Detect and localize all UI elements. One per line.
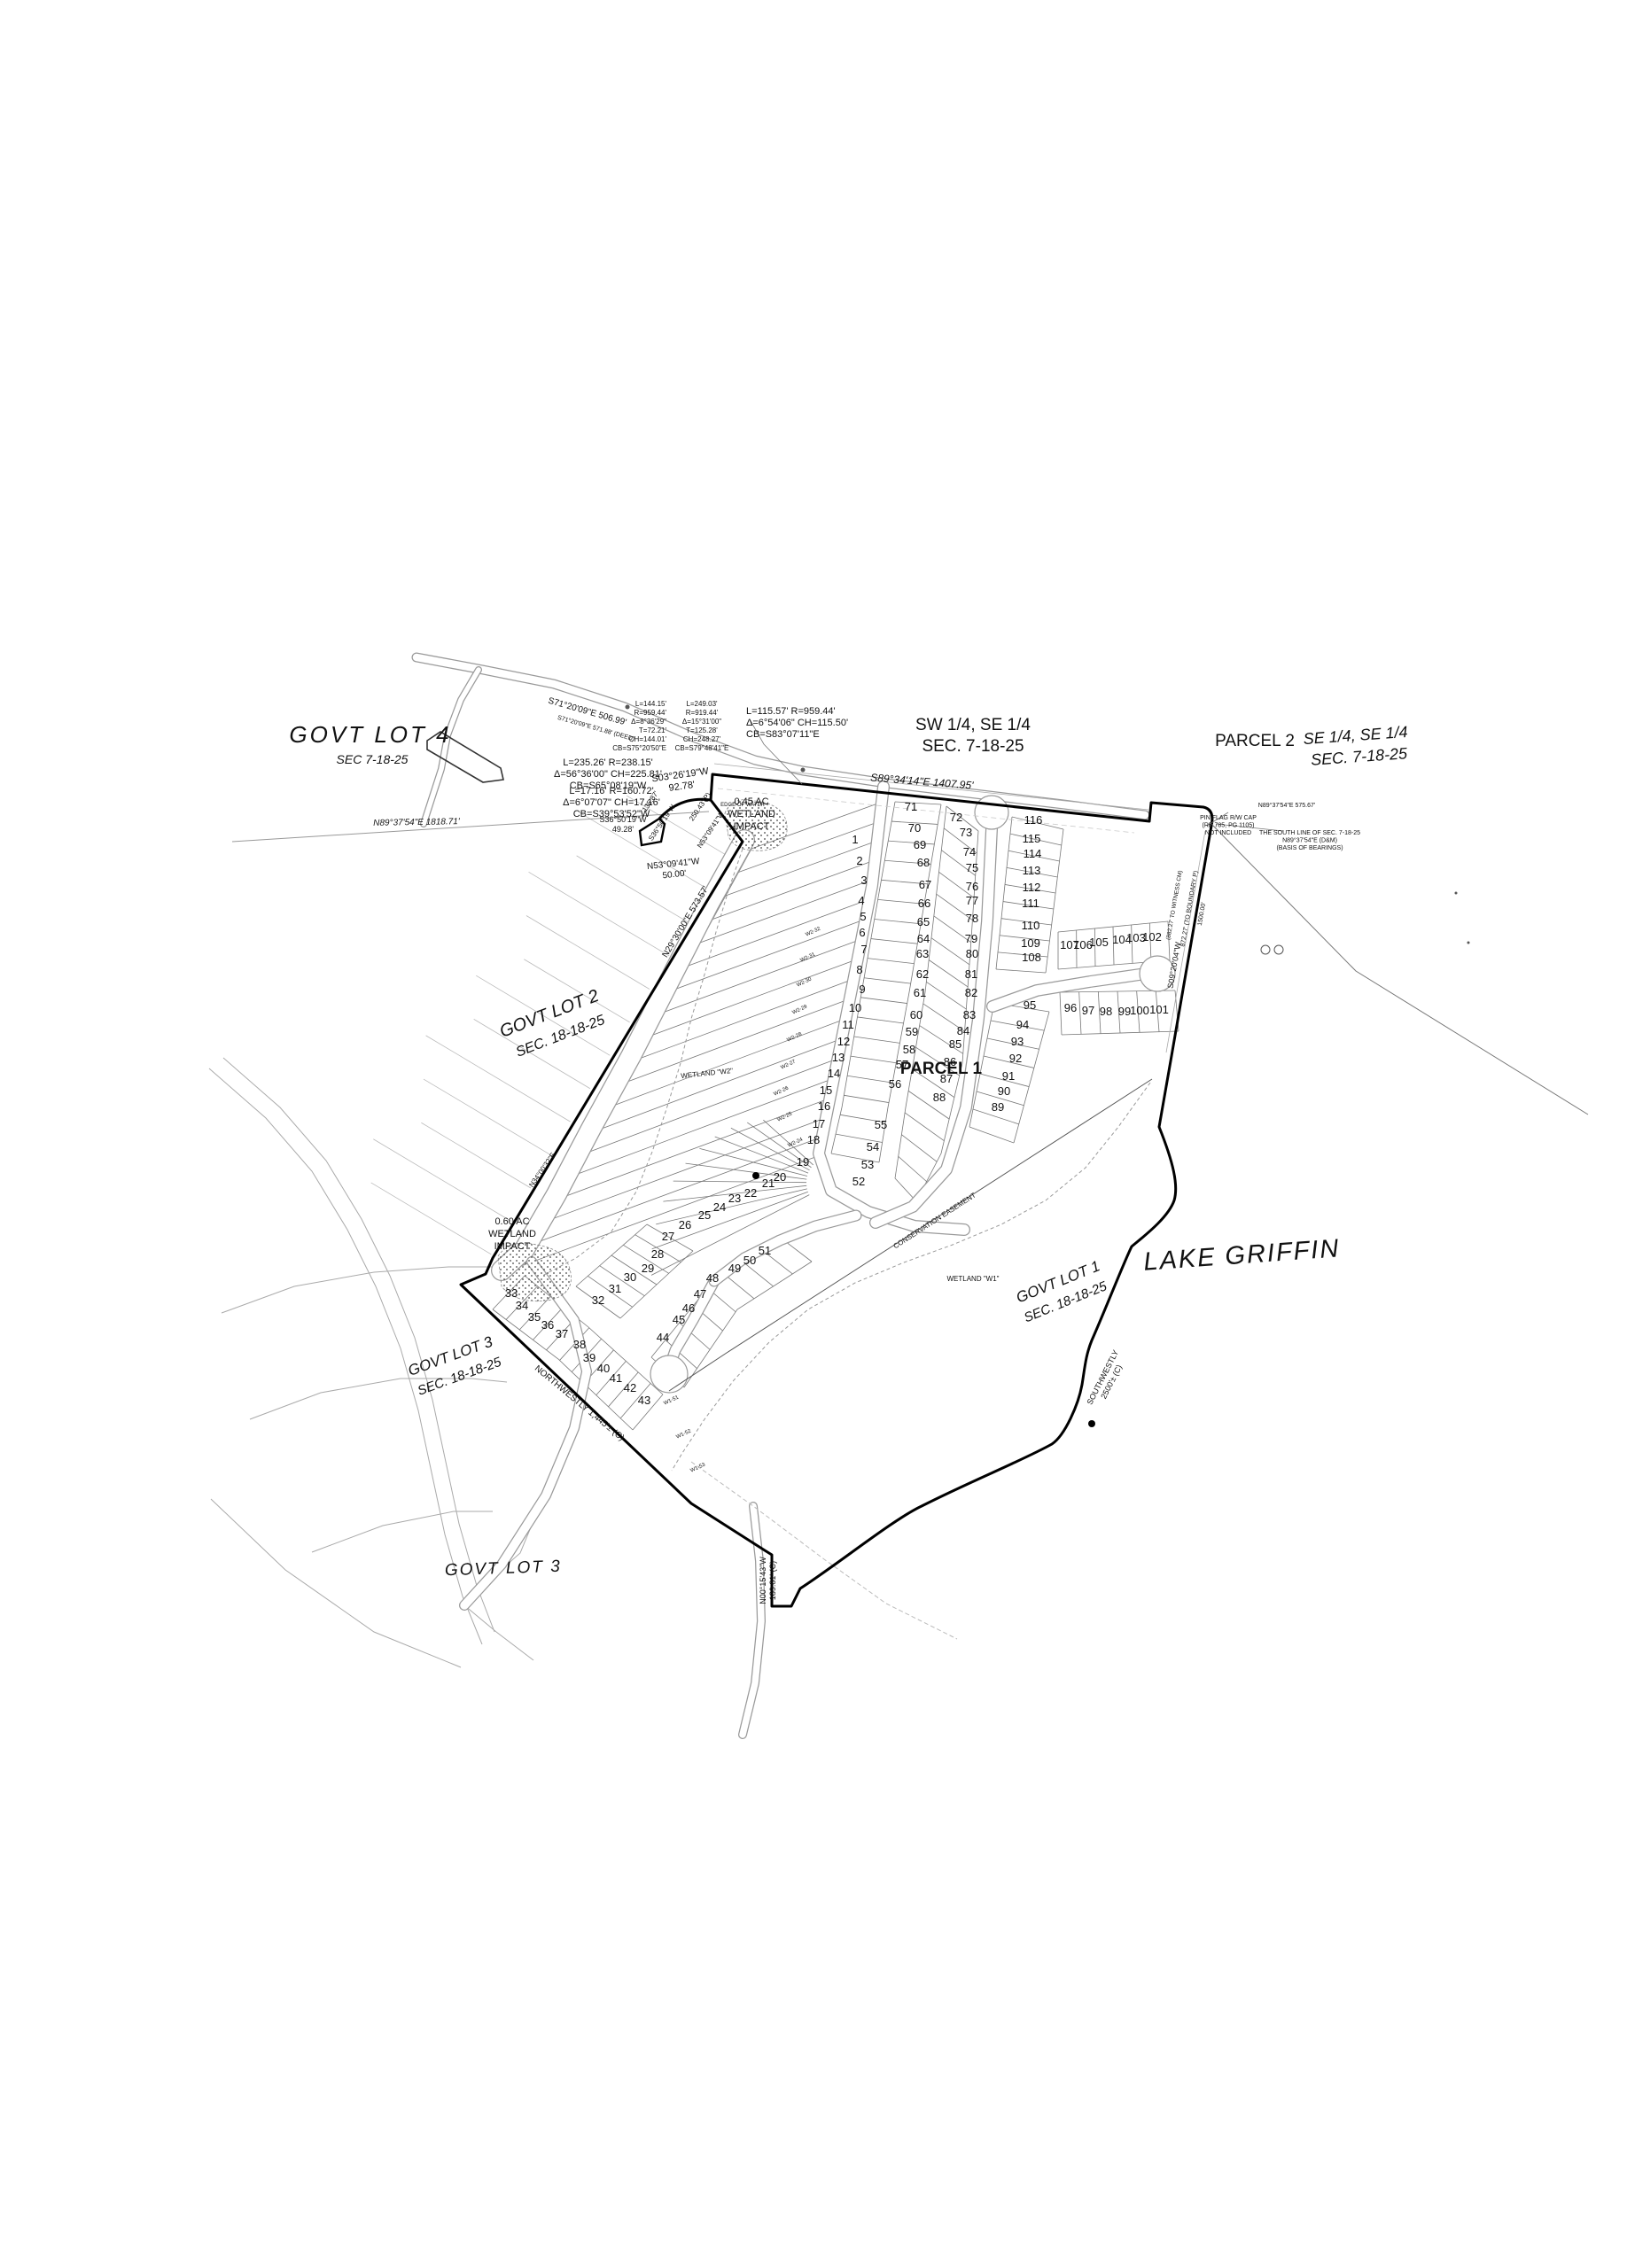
lot-number: 56	[889, 1077, 901, 1091]
svg-text:100: 100	[1130, 1004, 1149, 1017]
svg-text:WETLAND: WETLAND	[488, 1229, 536, 1239]
svg-text:70: 70	[908, 821, 921, 835]
lot-number: 90	[998, 1084, 1010, 1098]
lot-number: 79	[965, 932, 977, 945]
lot-number: 42	[624, 1381, 636, 1394]
svg-text:THE SOUTH LINE OF SEC. 7-18-25: THE SOUTH LINE OF SEC. 7-18-25	[1259, 830, 1360, 836]
wetland-label: WETLAND	[728, 809, 775, 819]
svg-text:SEC 7-18-25: SEC 7-18-25	[337, 752, 409, 766]
svg-text:55: 55	[875, 1118, 887, 1131]
lot-number: 50	[743, 1254, 756, 1267]
svg-text:80: 80	[966, 947, 978, 960]
svg-text:WETLAND "W1": WETLAND "W1"	[946, 1275, 999, 1283]
svg-text:L=249.03': L=249.03'	[686, 700, 718, 708]
svg-text:SEC. 7-18-25: SEC. 7-18-25	[922, 737, 1024, 756]
svg-text:40: 40	[597, 1362, 610, 1375]
lot-number: 52	[852, 1175, 865, 1188]
svg-text:6: 6	[859, 926, 865, 939]
bearing-label: N89°37'54"E 575.67'	[1258, 802, 1315, 809]
area-label: PARCEL 2	[1215, 732, 1295, 750]
svg-text:4: 4	[858, 894, 864, 907]
lot-number: 35	[528, 1310, 541, 1324]
svg-text:CH=144.01': CH=144.01'	[629, 735, 667, 743]
lot-number: 1	[852, 833, 858, 846]
svg-text:24: 24	[713, 1200, 726, 1214]
plat-map: 1234567891011121314151617181920212223242…	[0, 0, 1627, 2268]
svg-text:PARCEL 2: PARCEL 2	[1215, 732, 1295, 750]
svg-text:101: 101	[1149, 1003, 1169, 1016]
svg-text:93: 93	[1011, 1035, 1024, 1048]
svg-text:13: 13	[832, 1051, 845, 1064]
lot-number: 9	[859, 983, 865, 996]
svg-text:94: 94	[1016, 1018, 1029, 1031]
lot-number: 21	[762, 1177, 775, 1190]
area-label: GOVT LOT 4	[289, 721, 451, 748]
lot-number: 60	[910, 1008, 922, 1021]
svg-text:96: 96	[1064, 1001, 1077, 1014]
svg-text:28: 28	[651, 1247, 664, 1261]
svg-text:38: 38	[573, 1338, 586, 1351]
lot-number: 22	[744, 1186, 757, 1200]
lot-number: 99	[1118, 1005, 1131, 1018]
svg-text:88: 88	[933, 1091, 946, 1104]
svg-text:(BASIS OF BEARINGS): (BASIS OF BEARINGS)	[1276, 845, 1343, 851]
lot-number: 36	[541, 1318, 554, 1332]
survey-point	[1088, 1420, 1095, 1427]
lot-number: 48	[706, 1271, 719, 1285]
lot-number: 55	[875, 1118, 887, 1131]
lot-number: 101	[1149, 1003, 1169, 1016]
lot-number: 40	[597, 1362, 610, 1375]
svg-text:189.81' (C): 189.81' (C)	[768, 1561, 777, 1600]
lot-number: 45	[673, 1313, 685, 1326]
svg-text:95: 95	[1024, 998, 1036, 1012]
svg-text:111: 111	[1022, 897, 1039, 910]
lot-number: 8	[856, 963, 862, 976]
svg-text:60: 60	[910, 1008, 922, 1021]
lot-number: 72	[950, 811, 962, 824]
svg-text:L=115.57' R=959.44': L=115.57' R=959.44'	[746, 706, 836, 717]
svg-text:T=125.28': T=125.28'	[686, 726, 718, 734]
svg-text:23: 23	[728, 1192, 741, 1205]
lot-number: 74	[963, 845, 976, 858]
svg-text:64: 64	[917, 932, 930, 945]
lot-number: 91	[1002, 1069, 1015, 1083]
svg-text:68: 68	[917, 856, 930, 869]
area-label: SW 1/4, SE 1/4	[915, 716, 1031, 734]
lot-number: 63	[916, 947, 929, 960]
svg-text:3: 3	[860, 874, 867, 887]
lot-number: 114	[1024, 847, 1042, 860]
svg-text:Δ=8°36'29": Δ=8°36'29"	[631, 718, 666, 726]
lot-number: 32	[592, 1293, 604, 1307]
svg-text:(RB 785, PG 1105): (RB 785, PG 1105)	[1202, 823, 1254, 829]
svg-text:73: 73	[960, 826, 972, 839]
area-label: SEC 7-18-25	[337, 752, 409, 766]
svg-text:21: 21	[762, 1177, 775, 1190]
svg-text:19: 19	[797, 1155, 809, 1169]
lot-number: 16	[818, 1099, 830, 1113]
area-label: PARCEL 1	[900, 1060, 983, 1078]
svg-text:SW 1/4, SE 1/4: SW 1/4, SE 1/4	[915, 716, 1031, 734]
svg-text:9: 9	[859, 983, 865, 996]
lot-number: 71	[905, 800, 917, 813]
lot-number: 81	[965, 967, 977, 981]
svg-text:S36°50'19"W: S36°50'19"W	[599, 815, 647, 824]
svg-text:56: 56	[889, 1077, 901, 1091]
svg-text:IMPACT: IMPACT	[494, 1241, 531, 1252]
lot-number: 111	[1022, 897, 1039, 910]
svg-text:54: 54	[867, 1140, 879, 1153]
svg-text:107: 107	[1060, 938, 1079, 951]
svg-text:53: 53	[861, 1158, 874, 1171]
svg-text:CB=S79°48'41"E: CB=S79°48'41"E	[675, 744, 729, 752]
svg-text:N89°37'54"E 1818.71': N89°37'54"E 1818.71'	[373, 817, 461, 828]
lot-number: 13	[832, 1051, 845, 1064]
lot-number: 95	[1024, 998, 1036, 1012]
svg-text:26: 26	[679, 1218, 691, 1231]
svg-text:L=17.16' R=160.72': L=17.16' R=160.72'	[569, 786, 653, 796]
bearing-label: N89°37'54"E 1818.71'	[373, 817, 461, 828]
lot-number: 92	[1009, 1052, 1022, 1065]
lot-number: 59	[906, 1025, 918, 1038]
lot-number: 68	[917, 856, 930, 869]
svg-text:112: 112	[1023, 881, 1041, 894]
svg-text:49: 49	[728, 1262, 741, 1275]
lot-number: 112	[1023, 881, 1041, 894]
wetland-label: IMPACT	[734, 821, 770, 832]
svg-text:Δ=6°54'06" CH=115.50': Δ=6°54'06" CH=115.50'	[746, 718, 848, 728]
lot-number: 69	[914, 838, 926, 851]
svg-text:EDGE OF WATER: EDGE OF WATER	[720, 803, 765, 808]
svg-text:81: 81	[965, 967, 977, 981]
svg-text:PARCEL 1: PARCEL 1	[900, 1060, 983, 1078]
svg-text:77: 77	[966, 894, 978, 907]
svg-text:18: 18	[807, 1133, 820, 1146]
svg-text:14: 14	[828, 1067, 840, 1080]
lot-number: 10	[849, 1001, 861, 1014]
lot-number: 26	[679, 1218, 691, 1231]
lot-number: 54	[867, 1140, 879, 1153]
lot-number: 83	[963, 1008, 976, 1021]
lot-number: 116	[1024, 813, 1043, 827]
svg-text:114: 114	[1024, 847, 1042, 860]
lot-number: 27	[662, 1230, 674, 1243]
lot-number: 113	[1023, 864, 1041, 877]
bearing-label: EDGE OF WATER	[720, 803, 765, 808]
survey-point	[752, 1172, 759, 1179]
svg-text:33: 33	[505, 1286, 518, 1300]
lot-number: 80	[966, 947, 978, 960]
svg-text:34: 34	[516, 1299, 528, 1312]
svg-text:58: 58	[903, 1043, 915, 1056]
svg-text:50: 50	[743, 1254, 756, 1267]
svg-text:65: 65	[917, 915, 930, 928]
svg-text:R=959.44': R=959.44'	[634, 709, 667, 717]
svg-text:15: 15	[820, 1084, 832, 1097]
svg-text:7: 7	[860, 943, 867, 956]
svg-text:PIN FLAG R/W CAP: PIN FLAG R/W CAP	[1200, 815, 1257, 821]
survey-point	[1455, 892, 1458, 895]
svg-text:IMPACT: IMPACT	[734, 821, 770, 832]
lot-number: 29	[642, 1262, 654, 1275]
svg-text:59: 59	[906, 1025, 918, 1038]
svg-text:44: 44	[657, 1331, 669, 1344]
svg-text:R=919.44': R=919.44'	[686, 709, 719, 717]
svg-text:99: 99	[1118, 1005, 1131, 1018]
lot-number: 43	[638, 1394, 650, 1407]
svg-text:17: 17	[813, 1117, 825, 1130]
svg-text:74: 74	[963, 845, 976, 858]
svg-text:1: 1	[852, 833, 858, 846]
lot-number: 18	[807, 1133, 820, 1146]
lot-number: 110	[1022, 919, 1040, 932]
lot-number: 67	[919, 878, 931, 891]
svg-text:CB=S83°07'11"E: CB=S83°07'11"E	[746, 729, 820, 740]
lot-number: 44	[657, 1331, 669, 1344]
lot-number: 77	[966, 894, 978, 907]
lot-number: 70	[908, 821, 921, 835]
lot-number: 88	[933, 1091, 946, 1104]
svg-text:20: 20	[774, 1170, 786, 1184]
svg-text:30: 30	[624, 1270, 636, 1284]
svg-text:113: 113	[1023, 864, 1041, 877]
svg-text:2: 2	[856, 854, 862, 867]
lot-number: 25	[698, 1208, 711, 1222]
lot-number: 108	[1022, 951, 1041, 964]
lot-number: 66	[918, 897, 930, 910]
lot-number: 89	[992, 1100, 1004, 1114]
svg-text:85: 85	[949, 1037, 961, 1051]
svg-text:109: 109	[1021, 936, 1040, 950]
svg-text:69: 69	[914, 838, 926, 851]
lot-number: 2	[856, 854, 862, 867]
wetland-label: WETLAND "W1"	[946, 1275, 999, 1283]
svg-text:36: 36	[541, 1318, 554, 1332]
lot-number: 6	[859, 926, 865, 939]
svg-text:71: 71	[905, 800, 917, 813]
svg-text:0.60 AC: 0.60 AC	[494, 1216, 529, 1227]
lot-number: 24	[713, 1200, 726, 1214]
svg-text:92: 92	[1009, 1052, 1022, 1065]
svg-text:11: 11	[842, 1018, 854, 1031]
lot-number: 47	[694, 1287, 706, 1301]
svg-text:37: 37	[556, 1327, 568, 1340]
lot-number: 84	[957, 1024, 969, 1037]
lot-number: 61	[914, 986, 926, 999]
svg-text:90: 90	[998, 1084, 1010, 1098]
svg-text:62: 62	[916, 967, 929, 981]
svg-text:108: 108	[1022, 951, 1041, 964]
lot-number: 94	[1016, 1018, 1029, 1031]
svg-text:22: 22	[744, 1186, 757, 1200]
lot-number: 64	[917, 932, 930, 945]
lot-number: 46	[682, 1301, 695, 1315]
svg-text:GOVT LOT 4: GOVT LOT 4	[289, 721, 451, 748]
lot-number: 37	[556, 1327, 568, 1340]
svg-text:N89°37'54"E 575.67': N89°37'54"E 575.67'	[1258, 802, 1315, 809]
lot-number: 85	[949, 1037, 961, 1051]
lot-number: 41	[610, 1371, 622, 1385]
lot-number: 23	[728, 1192, 741, 1205]
lot-number: 107	[1060, 938, 1079, 951]
svg-text:8: 8	[856, 963, 862, 976]
svg-text:WETLAND: WETLAND	[728, 809, 775, 819]
svg-text:115: 115	[1023, 832, 1041, 845]
svg-text:66: 66	[918, 897, 930, 910]
svg-text:42: 42	[624, 1381, 636, 1394]
svg-text:35: 35	[528, 1310, 541, 1324]
svg-text:29: 29	[642, 1262, 654, 1275]
svg-text:91: 91	[1002, 1069, 1015, 1083]
svg-text:41: 41	[610, 1371, 622, 1385]
plat-sheet: 1234567891011121314151617181920212223242…	[0, 0, 1627, 2268]
lot-number: 5	[860, 910, 866, 923]
svg-text:32: 32	[592, 1293, 604, 1307]
svg-text:L=235.26' R=238.15': L=235.26' R=238.15'	[563, 757, 652, 768]
svg-text:75: 75	[966, 861, 978, 874]
lot-number: 33	[505, 1286, 518, 1300]
lot-number: 17	[813, 1117, 825, 1130]
svg-text:83: 83	[963, 1008, 976, 1021]
lot-number: 15	[820, 1084, 832, 1097]
svg-text:Δ=56°36'00" CH=225.81': Δ=56°36'00" CH=225.81'	[554, 769, 662, 780]
lot-number: 65	[917, 915, 930, 928]
svg-text:31: 31	[609, 1282, 621, 1295]
svg-text:10: 10	[849, 1001, 861, 1014]
lot-number: 51	[759, 1244, 771, 1257]
lot-number: 19	[797, 1155, 809, 1169]
lot-number: 104	[1112, 933, 1132, 946]
svg-text:104: 104	[1112, 933, 1132, 946]
svg-text:27: 27	[662, 1230, 674, 1243]
svg-text:25: 25	[698, 1208, 711, 1222]
lot-number: 7	[860, 943, 867, 956]
svg-text:116: 116	[1024, 813, 1043, 827]
svg-text:39: 39	[583, 1351, 596, 1364]
lot-number: 75	[966, 861, 978, 874]
lot-number: 109	[1021, 936, 1040, 950]
lot-number: 28	[651, 1247, 664, 1261]
svg-text:L=144.15': L=144.15'	[635, 700, 667, 708]
survey-point	[1467, 942, 1470, 944]
svg-text:43: 43	[638, 1394, 650, 1407]
wetland-label: 0.60 AC	[494, 1216, 529, 1227]
lot-number: 100	[1130, 1004, 1149, 1017]
lot-number: 20	[774, 1170, 786, 1184]
lot-number: 31	[609, 1282, 621, 1295]
lot-number: 12	[837, 1035, 850, 1048]
svg-text:79: 79	[965, 932, 977, 945]
lot-number: 30	[624, 1270, 636, 1284]
svg-text:45: 45	[673, 1313, 685, 1326]
lot-number: 62	[916, 967, 929, 981]
cul-de-sac	[975, 796, 1008, 829]
lot-number: 38	[573, 1338, 586, 1351]
wetland-label: WETLAND	[488, 1229, 536, 1239]
lot-number: 76	[966, 880, 978, 893]
lot-number: 49	[728, 1262, 741, 1275]
svg-text:CB=S75°20'50"E: CB=S75°20'50"E	[612, 744, 666, 752]
svg-text:76: 76	[966, 880, 978, 893]
svg-text:67: 67	[919, 878, 931, 891]
svg-text:78: 78	[966, 912, 978, 925]
lot-number: 96	[1064, 1001, 1077, 1014]
lot-number: 115	[1023, 832, 1041, 845]
svg-text:12: 12	[837, 1035, 850, 1048]
svg-text:NOT INCLUDED: NOT INCLUDED	[1205, 830, 1251, 836]
svg-text:CH=248.27': CH=248.27'	[683, 735, 721, 743]
lot-number: 3	[860, 874, 867, 887]
note-block: PIN FLAG R/W CAP(RB 785, PG 1105)NOT INC…	[1200, 815, 1257, 836]
svg-text:72: 72	[950, 811, 962, 824]
svg-text:16: 16	[818, 1099, 830, 1113]
svg-text:46: 46	[682, 1301, 695, 1315]
svg-text:49.28': 49.28'	[612, 825, 634, 834]
survey-point	[801, 768, 806, 773]
lot-number: 78	[966, 912, 978, 925]
lot-number: 53	[861, 1158, 874, 1171]
svg-text:97: 97	[1082, 1004, 1094, 1017]
lot-number: 73	[960, 826, 972, 839]
wetland-label: IMPACT	[494, 1241, 531, 1252]
svg-text:63: 63	[916, 947, 929, 960]
svg-text:51: 51	[759, 1244, 771, 1257]
svg-text:98: 98	[1100, 1005, 1112, 1018]
lot-number: 34	[516, 1299, 528, 1312]
lot-number: 58	[903, 1043, 915, 1056]
survey-point	[626, 705, 630, 710]
cul-de-sac	[650, 1355, 688, 1393]
svg-text:110: 110	[1022, 919, 1040, 932]
lot-number: 4	[858, 894, 864, 907]
svg-text:N00°15'43"W: N00°15'43"W	[759, 1557, 767, 1604]
lot-number: 98	[1100, 1005, 1112, 1018]
svg-text:Δ=15°31'00": Δ=15°31'00"	[682, 718, 721, 726]
svg-text:52: 52	[852, 1175, 865, 1188]
area-label: SEC. 7-18-25	[922, 737, 1024, 756]
svg-text:89: 89	[992, 1100, 1004, 1114]
lot-number: 39	[583, 1351, 596, 1364]
svg-text:5: 5	[860, 910, 866, 923]
lot-number: 97	[1082, 1004, 1094, 1017]
lot-number: 11	[842, 1018, 854, 1031]
svg-text:61: 61	[914, 986, 926, 999]
svg-text:N89°37'54"E (D&M): N89°37'54"E (D&M)	[1282, 837, 1337, 844]
svg-text:Δ=6°07'07" CH=17.16': Δ=6°07'07" CH=17.16'	[563, 797, 660, 808]
svg-text:82: 82	[965, 986, 977, 999]
note-block: N00°15'43"W189.81' (C)	[759, 1557, 777, 1604]
lot-number: 93	[1011, 1035, 1024, 1048]
svg-text:48: 48	[706, 1271, 719, 1285]
lot-number: 82	[965, 986, 977, 999]
lot-number: 14	[828, 1067, 840, 1080]
svg-text:T=72.21': T=72.21'	[639, 726, 667, 734]
svg-text:84: 84	[957, 1024, 969, 1037]
svg-text:47: 47	[694, 1287, 706, 1301]
